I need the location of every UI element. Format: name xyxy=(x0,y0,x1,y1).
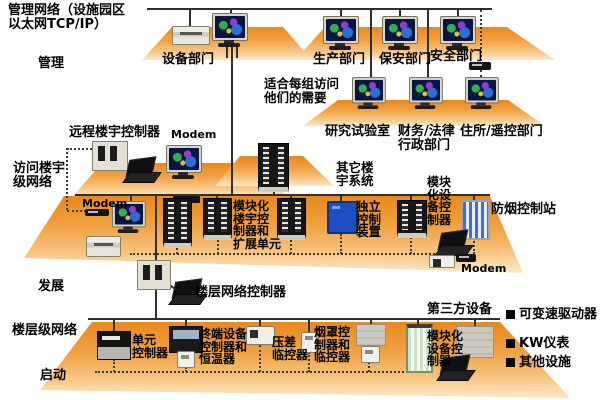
dashed-tick xyxy=(473,238,475,254)
label-modular-building-controller: 模块化 楼宇控 制器和 扩展单元 xyxy=(233,200,281,250)
label-production-dept: 生产部门 xyxy=(313,53,365,67)
hood-controller-device xyxy=(356,324,386,346)
network-diagram: 管理网络（设施园区 以太网TCP/IP） 管理 设备部门 生产部门 保安部门 安… xyxy=(0,0,600,400)
dashed-line xyxy=(95,371,428,373)
monitor-panel-device xyxy=(361,346,380,363)
monitor xyxy=(382,16,418,44)
drop-line xyxy=(189,9,191,26)
drop-line-long xyxy=(427,9,429,78)
label-standalone-control: 独立 控制 装置 xyxy=(356,201,381,239)
floor-network-controller-device xyxy=(137,260,171,290)
computer-research-lab xyxy=(352,77,386,111)
label-floor-network-controller: 楼层网络控制器 xyxy=(195,286,286,300)
monitor xyxy=(465,77,499,103)
stage-label-floor: 楼层级网络 xyxy=(12,324,77,338)
modular-equipment-controller-rack xyxy=(397,200,427,238)
label-pressure-monitor: 压差 临控器 xyxy=(272,336,308,361)
label-third-party-devices: 第三方设备 xyxy=(427,303,492,317)
label-safety-dept: 安全部门 xyxy=(430,50,482,64)
legend-bullet xyxy=(506,339,515,348)
label-modular-equipment-controller-floor: 模块化 设备控 制器 xyxy=(427,330,463,368)
stage-label-access: 访问楼宇 级网络 xyxy=(13,162,65,190)
management-bus-line xyxy=(147,8,492,10)
drop-line xyxy=(308,319,310,333)
monitor-stand xyxy=(452,43,462,46)
dashed-tick xyxy=(308,352,310,372)
monitor xyxy=(352,77,386,103)
laptop-device xyxy=(122,158,156,184)
floor-bus-line xyxy=(88,318,500,320)
dashed-line xyxy=(480,70,482,77)
other-building-systems-rack xyxy=(258,143,289,192)
monitor-stand xyxy=(476,102,485,105)
label-finance-legal: 财务/法律 行政部门 xyxy=(398,125,455,153)
label-research-lab: 研究试验室 xyxy=(325,125,390,139)
dashed-tick xyxy=(340,234,342,254)
legend-bullet xyxy=(506,310,515,319)
floor-riser-line xyxy=(155,196,157,319)
interface-box xyxy=(429,255,455,268)
legend-item-variable-speed-drive: 可变速驱动器 xyxy=(519,308,597,322)
computer-residence-remote xyxy=(465,77,499,111)
monitor xyxy=(323,16,359,44)
monitor xyxy=(212,13,248,41)
computer-production-dept xyxy=(323,16,359,52)
label-remote-building-controller: 远程楼宇控制器 xyxy=(69,126,160,140)
computer-security-dept xyxy=(382,16,418,52)
drop-line-long xyxy=(370,9,372,78)
label-terminal-controller: 终端设备 控制器和 恒温器 xyxy=(199,328,247,366)
monitor xyxy=(409,77,443,103)
monitor xyxy=(440,16,476,44)
terminal-controller-device xyxy=(169,326,203,353)
building-controller-rack xyxy=(163,198,192,248)
label-other-building-systems: 其它楼 宇系统 xyxy=(336,162,374,187)
note-access-needs: 适合每组访问 他们的需要 xyxy=(264,77,339,104)
monitor-stand xyxy=(224,40,234,43)
printer-device xyxy=(172,26,210,45)
legend-bullet xyxy=(506,358,515,367)
building-controller-rack xyxy=(277,198,306,240)
dashed-line xyxy=(66,148,68,210)
dashed-tick xyxy=(113,359,115,372)
label-hood-controller: 烟罩控 制器和 临控器 xyxy=(314,326,350,364)
label-modem-left: Modem xyxy=(82,198,127,210)
label-residence-remote: 住所/遥控部门 xyxy=(460,125,543,139)
monitor-stand xyxy=(178,172,188,175)
modem-device xyxy=(456,254,476,262)
dashed-line xyxy=(67,148,92,150)
computer-modem-workstation xyxy=(166,145,202,181)
modem-device xyxy=(85,209,109,216)
backbone-line xyxy=(231,57,233,195)
dashed-line xyxy=(67,210,86,212)
stage-label-management: 管理 xyxy=(38,57,64,71)
dashed-tick xyxy=(368,362,370,372)
label-smoke-control-station: 防烟控制站 xyxy=(491,203,556,217)
standalone-control-device xyxy=(327,201,358,234)
computer-safety-dept xyxy=(440,16,476,52)
monitor xyxy=(166,145,202,173)
monitor-stand xyxy=(363,102,372,105)
label-unit-controller: 单元 控制器 xyxy=(132,334,168,359)
monitor-stand xyxy=(123,226,132,229)
label-modem-top: Modem xyxy=(171,129,216,141)
unit-controller-device xyxy=(97,331,131,360)
legend-item-kw-meter: KW仪表 xyxy=(519,337,569,351)
monitor-stand xyxy=(420,102,429,105)
legend-item-other-facilities: 其他设施 xyxy=(519,356,571,370)
thermostat-device xyxy=(177,351,195,368)
computer-finance-legal xyxy=(409,77,443,111)
building-controller-rack xyxy=(203,198,232,240)
stage-label-startup: 启动 xyxy=(40,369,66,383)
stage-label-development: 发展 xyxy=(38,280,64,294)
computer-equipment-dept xyxy=(212,13,248,49)
pressure-sensor-device xyxy=(246,326,275,345)
label-equipment-dept: 设备部门 xyxy=(162,53,214,67)
printer-device xyxy=(86,236,121,257)
label-modular-equipment-controller: 模块 化设 备控 制器 xyxy=(427,176,451,226)
label-security-dept: 保安部门 xyxy=(379,53,431,67)
page-title: 管理网络（设施园区 以太网TCP/IP） xyxy=(8,4,125,32)
dashed-tick xyxy=(259,345,261,372)
monitor-stand xyxy=(335,43,345,46)
monitor-stand xyxy=(394,43,404,46)
label-modem-right: Modem xyxy=(461,263,506,275)
